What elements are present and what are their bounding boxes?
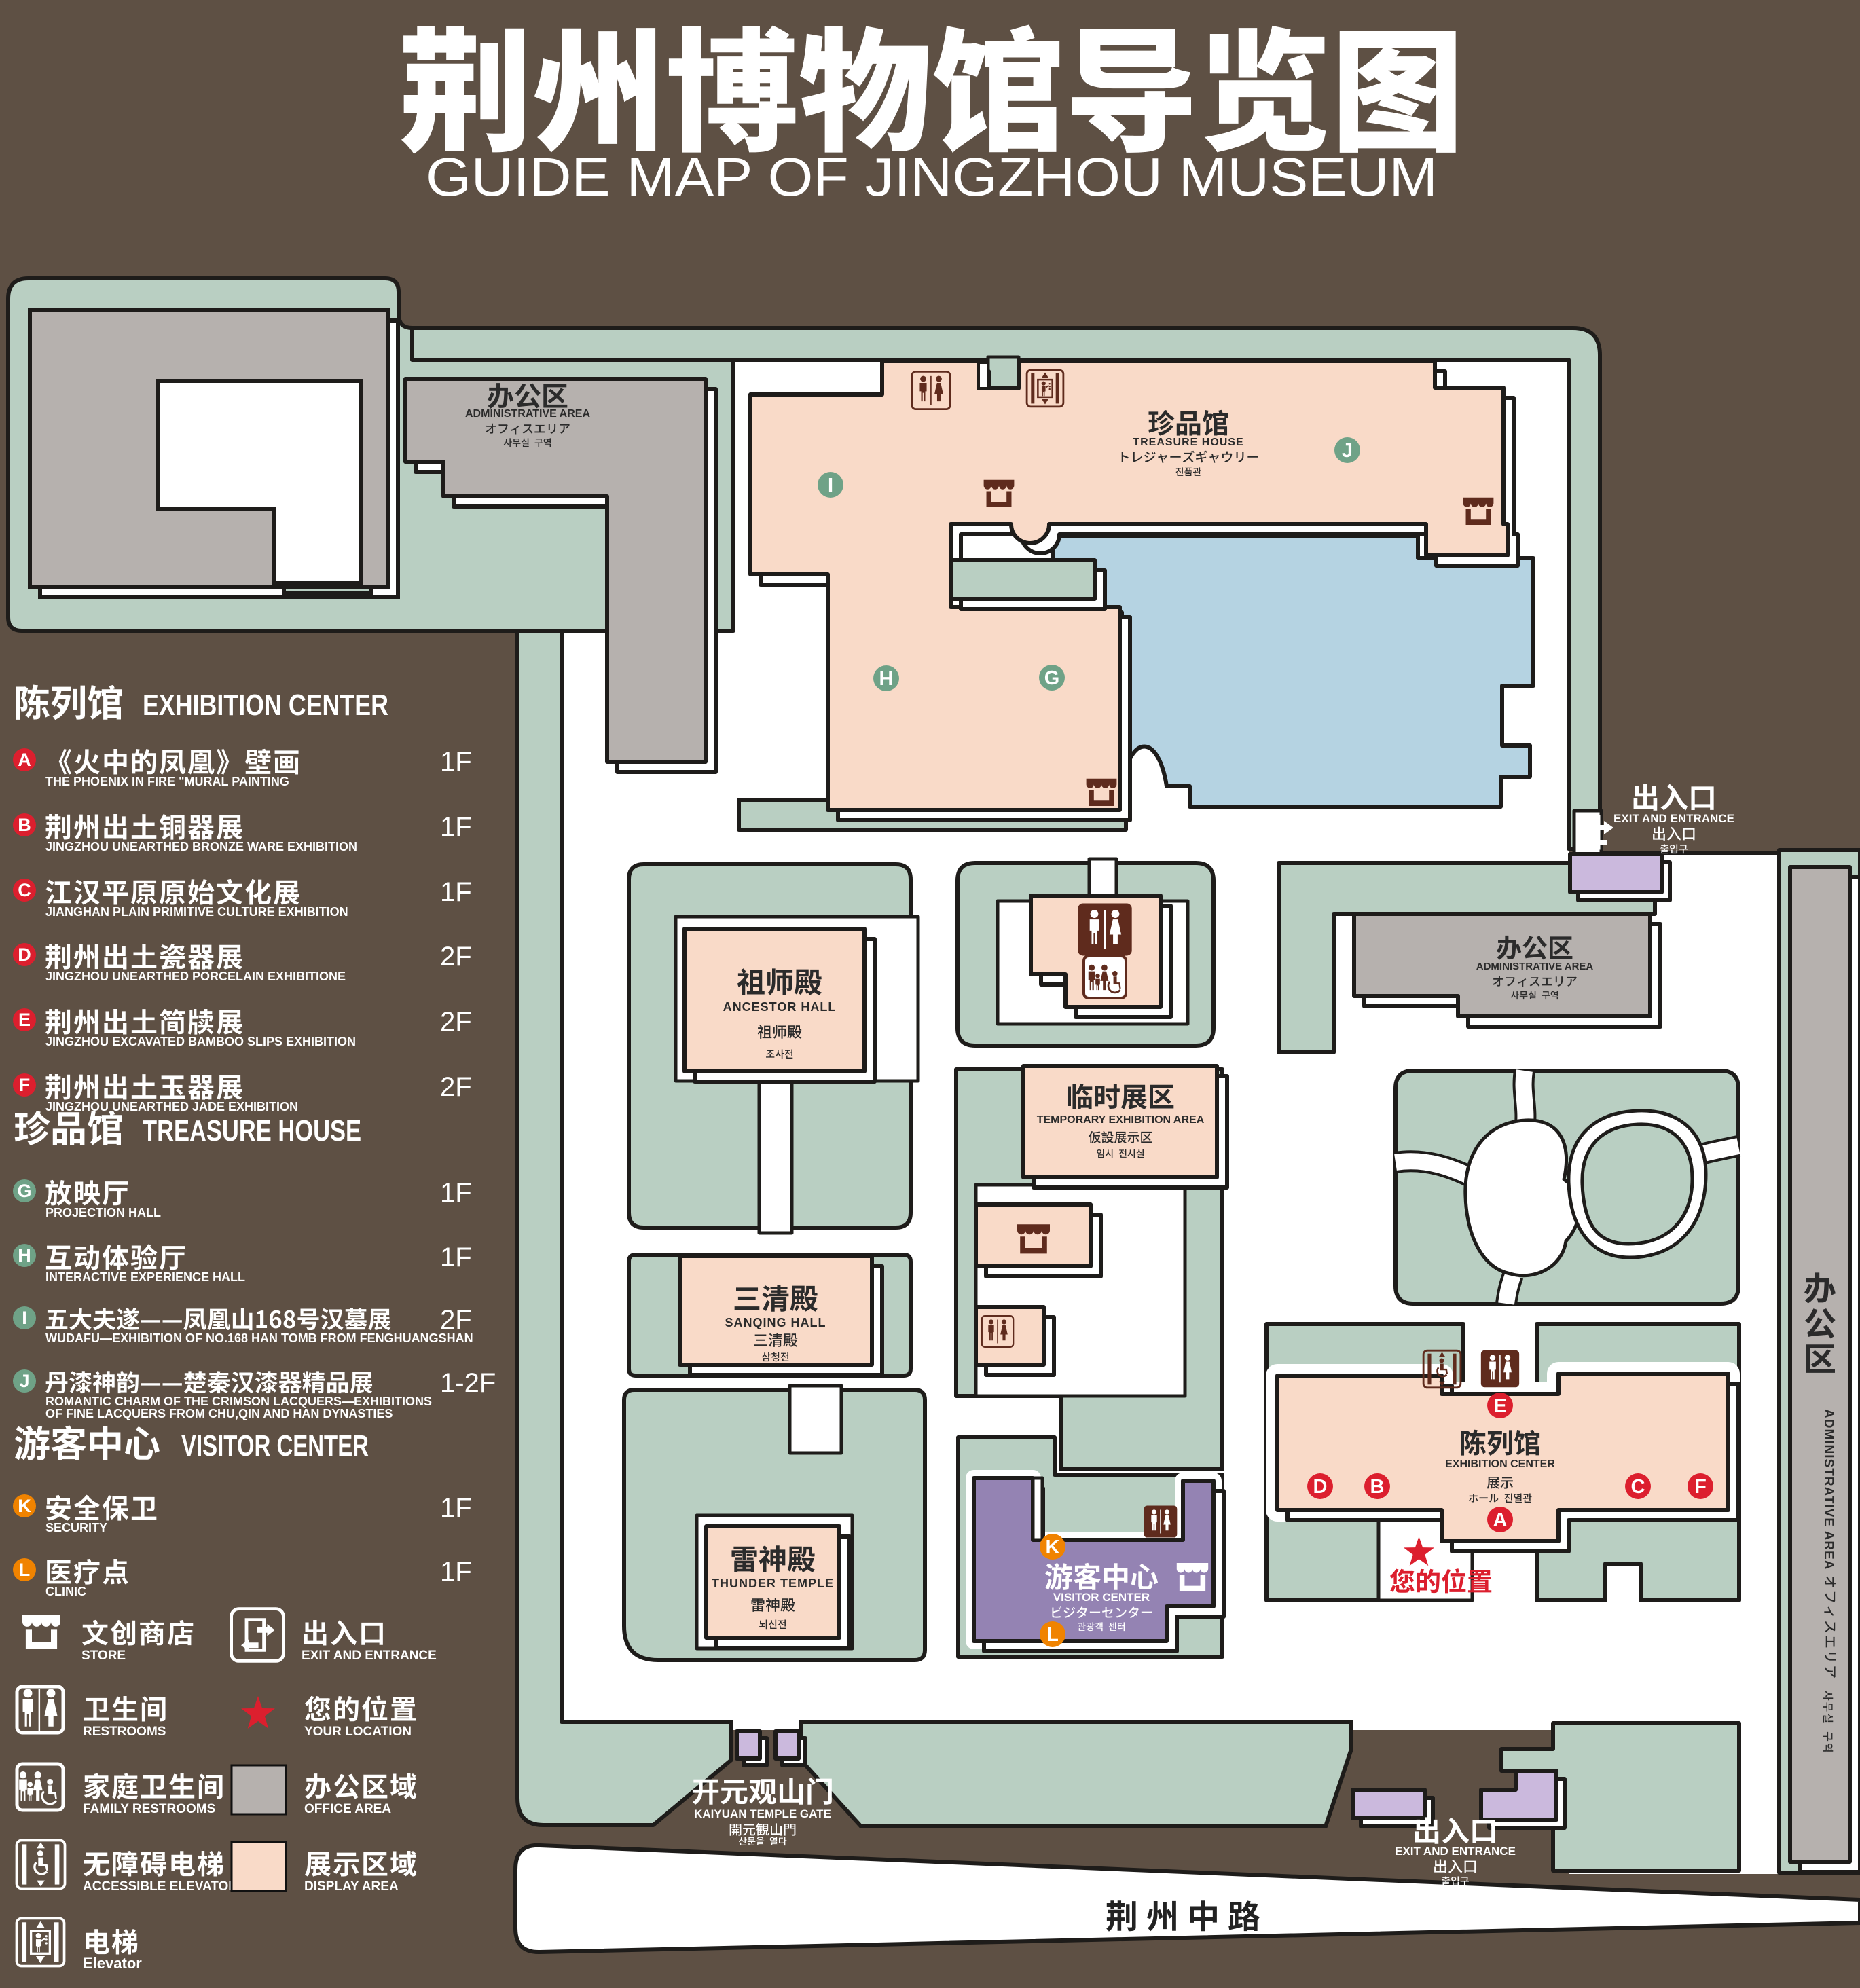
svg-text:E: E	[1493, 1395, 1506, 1417]
svg-text:WUDAFU—EXHIBITION OF NO.168 HA: WUDAFU—EXHIBITION OF NO.168 HAN TOMB FRO…	[45, 1331, 473, 1345]
svg-text:2F: 2F	[440, 1305, 472, 1335]
svg-text:SANQING HALL: SANQING HALL	[725, 1316, 826, 1329]
svg-text:F: F	[1694, 1476, 1707, 1498]
svg-text:JINGZHOU UNEARTHED BRONZE WARE: JINGZHOU UNEARTHED BRONZE WARE EXHIBITIO…	[45, 840, 357, 853]
svg-text:THUNDER TEMPLE: THUNDER TEMPLE	[712, 1577, 834, 1590]
svg-text:1F: 1F	[440, 1178, 472, 1208]
svg-text:F: F	[19, 1075, 31, 1095]
svg-text:H: H	[879, 668, 894, 690]
svg-text:FAMILY RESTROOMS: FAMILY RESTROOMS	[83, 1802, 215, 1816]
svg-text:C: C	[1631, 1476, 1645, 1498]
svg-text:ADMINISTRATIVE AREA: ADMINISTRATIVE AREA	[465, 408, 590, 420]
svg-text:A: A	[1493, 1509, 1508, 1531]
svg-text:KAIYUAN TEMPLE GATE: KAIYUAN TEMPLE GATE	[694, 1807, 831, 1820]
svg-text:OFFICE AREA: OFFICE AREA	[304, 1802, 391, 1816]
svg-text:I: I	[22, 1308, 27, 1328]
svg-text:PROJECTION HALL: PROJECTION HALL	[45, 1206, 161, 1219]
svg-text:D: D	[1313, 1476, 1328, 1498]
svg-text:THE PHOENIX IN FIRE "MURAL PAI: THE PHOENIX IN FIRE "MURAL PAINTING	[45, 775, 289, 788]
svg-text:JINGZHOU EXCAVATED BAMBOO SLIP: JINGZHOU EXCAVATED BAMBOO SLIPS EXHIBITI…	[45, 1035, 356, 1048]
svg-text:G: G	[1044, 667, 1060, 689]
svg-text:2F: 2F	[440, 942, 472, 972]
svg-text:L: L	[1046, 1624, 1059, 1646]
svg-text:RESTROOMS: RESTROOMS	[83, 1725, 166, 1739]
svg-text:EXIT AND ENTRANCE: EXIT AND ENTRANCE	[1395, 1845, 1516, 1858]
svg-text:1F: 1F	[440, 1557, 472, 1587]
svg-text:1-2F: 1-2F	[440, 1368, 496, 1398]
svg-text:EXIT AND ENTRANCE: EXIT AND ENTRANCE	[1613, 812, 1734, 825]
svg-text:EXHIBITION CENTER: EXHIBITION CENTER	[1445, 1458, 1555, 1470]
svg-text:G: G	[17, 1181, 31, 1201]
svg-text:ROMANTIC CHARM OF THE CRIMSON: ROMANTIC CHARM OF THE CRIMSON LACQUERS—E…	[45, 1395, 432, 1408]
svg-text:E: E	[18, 1010, 31, 1030]
svg-text:DISPLAY AREA: DISPLAY AREA	[304, 1879, 399, 1894]
svg-text:YOUR LOCATION: YOUR LOCATION	[304, 1725, 412, 1739]
svg-text:1F: 1F	[440, 1493, 472, 1523]
svg-text:JINGZHOU UNEARTHED PORCELAIN E: JINGZHOU UNEARTHED PORCELAIN EXHIBITIONE	[45, 970, 346, 983]
svg-text:EXHIBITION CENTER: EXHIBITION CENTER	[143, 688, 388, 722]
svg-text:TEMPORARY EXHIBITION AREA: TEMPORARY EXHIBITION AREA	[1037, 1114, 1205, 1126]
svg-text:K: K	[18, 1496, 31, 1516]
svg-text:JIANGHAN PLAIN PRIMITIVE CULTU: JIANGHAN PLAIN PRIMITIVE CULTURE EXHIBIT…	[45, 905, 348, 919]
svg-text:VISITOR CENTER: VISITOR CENTER	[1053, 1591, 1150, 1604]
svg-text:INTERACTIVE EXPERIENCE HALL: INTERACTIVE EXPERIENCE HALL	[45, 1270, 245, 1284]
svg-text:K: K	[1046, 1536, 1060, 1558]
svg-text:SECURITY: SECURITY	[45, 1521, 107, 1534]
svg-text:CLINIC: CLINIC	[45, 1585, 86, 1598]
svg-text:L: L	[19, 1560, 31, 1580]
svg-text:ADMINISTRATIVE AREA: ADMINISTRATIVE AREA	[1821, 1409, 1836, 1570]
svg-text:2F: 2F	[440, 1007, 472, 1037]
svg-text:D: D	[18, 944, 31, 965]
svg-text:J: J	[1342, 440, 1353, 462]
svg-text:OF FINE LACQUERS FROM CHU,QIN: OF FINE LACQUERS FROM CHU,QIN AND HAN DY…	[45, 1407, 393, 1420]
svg-text:Elevator: Elevator	[83, 1955, 142, 1972]
svg-text:2F: 2F	[440, 1072, 472, 1102]
svg-text:I: I	[828, 475, 833, 496]
svg-text:TREASURE HOUSE: TREASURE HOUSE	[1133, 437, 1243, 448]
svg-text:STORE: STORE	[81, 1649, 126, 1663]
svg-text:A: A	[18, 750, 31, 770]
svg-text:H: H	[18, 1245, 31, 1266]
svg-text:1F: 1F	[440, 877, 472, 907]
svg-text:ANCESTOR HALL: ANCESTOR HALL	[723, 1000, 837, 1014]
svg-text:J: J	[19, 1371, 29, 1391]
svg-text:1F: 1F	[440, 812, 472, 842]
svg-text:C: C	[18, 880, 31, 900]
svg-text:VISITOR CENTER: VISITOR CENTER	[181, 1429, 369, 1462]
svg-text:GUIDE MAP OF JINGZHOU MUSEUM: GUIDE MAP OF JINGZHOU MUSEUM	[426, 147, 1438, 207]
svg-text:B: B	[1370, 1476, 1385, 1498]
svg-text:JINGZHOU UNEARTHED JADE EXHIBI: JINGZHOU UNEARTHED JADE EXHIBITION	[45, 1100, 298, 1113]
svg-text:1F: 1F	[440, 1242, 472, 1272]
svg-text:ADMINISTRATIVE AREA: ADMINISTRATIVE AREA	[1476, 961, 1594, 972]
svg-text:1F: 1F	[440, 747, 472, 777]
svg-text:EXIT AND ENTRANCE: EXIT AND ENTRANCE	[302, 1649, 437, 1663]
svg-text:TREASURE HOUSE: TREASURE HOUSE	[143, 1114, 361, 1147]
svg-text:ACCESSIBLE ELEVATOR: ACCESSIBLE ELEVATOR	[83, 1879, 238, 1894]
svg-text:B: B	[18, 815, 31, 835]
